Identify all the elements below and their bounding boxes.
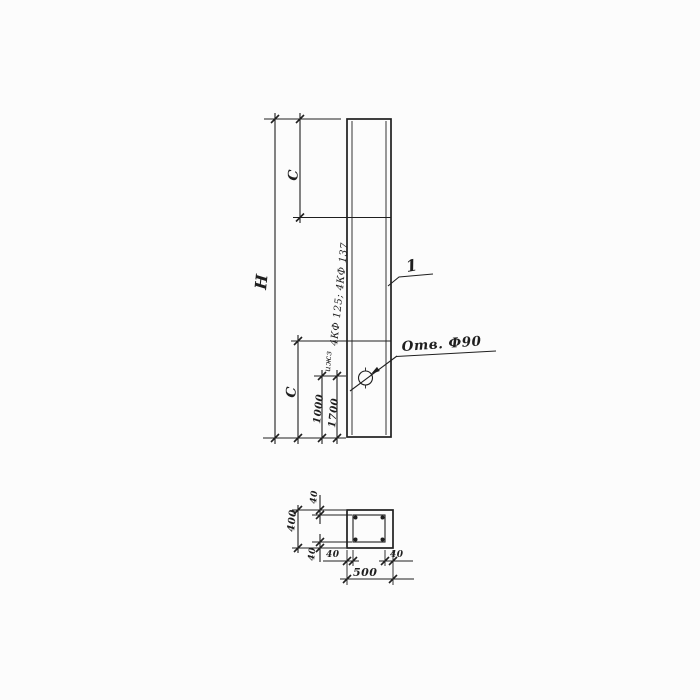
column-elevation	[347, 119, 391, 437]
column-cross-section	[347, 510, 393, 548]
rebar-dot	[381, 516, 385, 520]
elevation-extension-lines	[263, 119, 347, 438]
dim-label-cover-bottom: 40	[307, 547, 318, 562]
drawing-sheet: Отв. Ф90 1 4КФ 125; 4КФ 137 ижз H	[0, 0, 700, 700]
hole-leader-line	[350, 356, 397, 391]
rebar-dot	[381, 538, 385, 542]
dim-label-1700: 1700	[327, 397, 341, 428]
reinforcement-cage	[353, 515, 385, 542]
position-label: 1	[404, 255, 419, 276]
dim-label-400: 400	[286, 509, 299, 532]
column-outline	[347, 119, 391, 437]
dim-label-1000: 1000	[312, 393, 326, 424]
rebar-dot	[354, 538, 358, 542]
rebar-dot	[354, 516, 358, 520]
dim-label-cover-right: 40	[390, 550, 404, 560]
elevation-dimension-ticks	[271, 115, 341, 442]
dim-label-500: 500	[353, 566, 377, 579]
hole-callout: Отв. Ф90	[350, 333, 496, 391]
hole-leader-arrowhead-icon	[371, 367, 380, 374]
hole-label: Отв. Ф90	[401, 333, 482, 355]
position-mark: 1	[388, 255, 433, 286]
dim-label-cover-top: 40	[309, 490, 320, 505]
dim-label-H: H	[251, 273, 272, 292]
small-note-label: ижз	[323, 350, 334, 372]
dim-label-C-top: C	[285, 169, 302, 182]
position-leader-line	[388, 274, 433, 286]
technical-drawing: Отв. Ф90 1 4КФ 125; 4КФ 137 ижз H	[0, 0, 700, 700]
dim-label-C-bottom: C	[283, 386, 300, 399]
dim-label-cover-left: 40	[326, 550, 340, 560]
